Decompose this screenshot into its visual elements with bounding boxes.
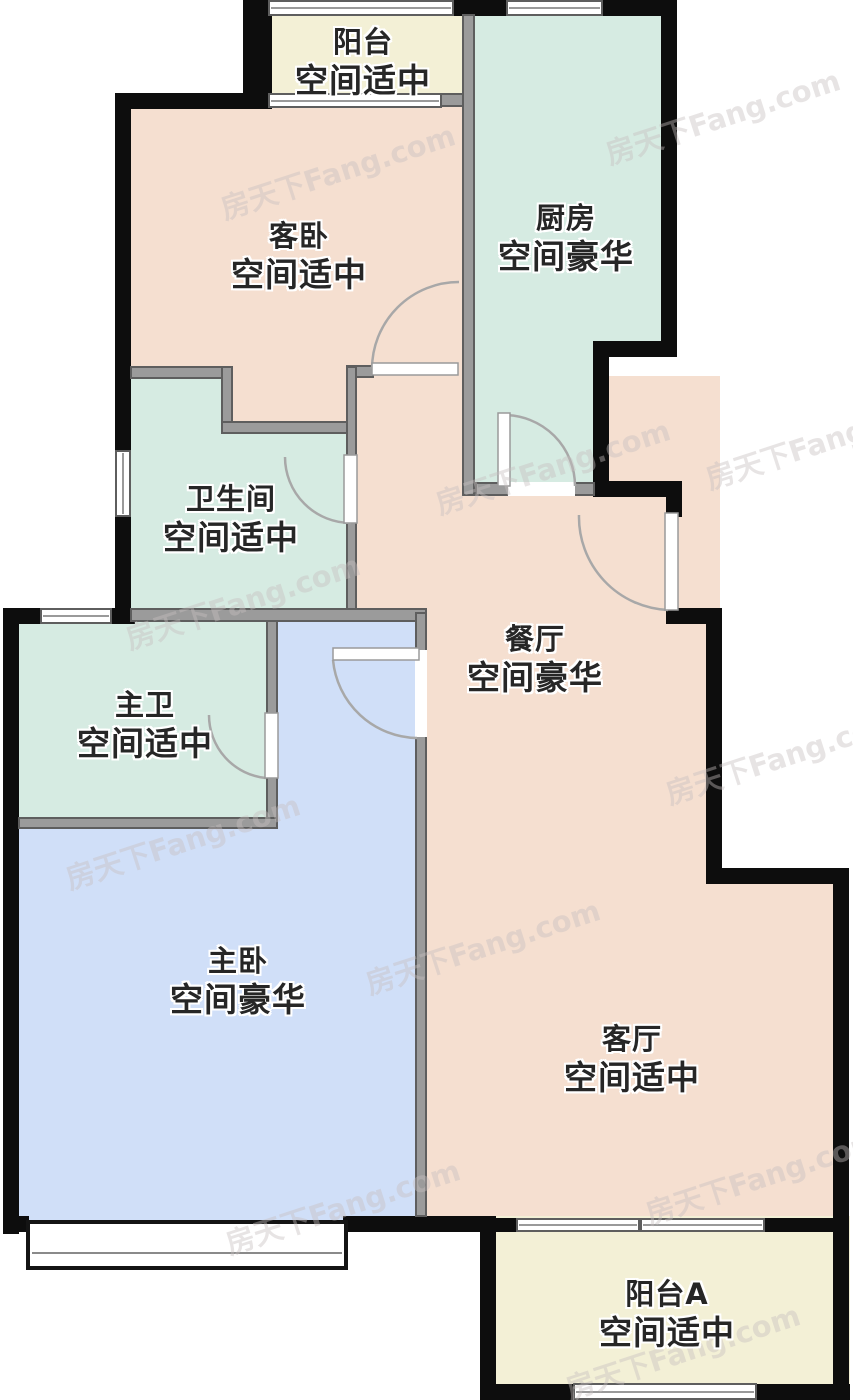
room-label-balcony: 阳台空间适中 [233,23,493,103]
room-name-balcony: 阳台 [333,24,393,60]
room-label-master-bedroom: 主卧空间豪华 [108,942,368,1022]
room-space-rating-bathroom: 空间适中 [163,517,299,559]
room-space-rating-living-room: 空间适中 [564,1057,700,1099]
room-label-master-bathroom: 主卫空间适中 [15,686,275,766]
room-space-rating-dining-room: 空间豪华 [467,657,603,699]
guest-bedroom-door-leaf [372,363,458,375]
room-space-rating-master-bedroom: 空间豪华 [170,979,306,1021]
room-label-guest-bedroom: 客卧空间适中 [169,217,429,297]
room-space-rating-balcony-a: 空间适中 [599,1312,735,1354]
room-space-rating-guest-bedroom: 空间适中 [231,254,367,296]
room-label-living-room: 客厅空间适中 [502,1020,762,1100]
room-label-dining-room: 餐厅空间豪华 [405,620,665,700]
floor-plan: 房天下Fang.com房天下Fang.com房天下Fang.com房天下Fang… [0,0,853,1400]
room-name-living-room: 客厅 [602,1021,662,1057]
room-name-bathroom: 卫生间 [186,481,276,517]
room-space-rating-master-bathroom: 空间适中 [77,723,213,765]
room-label-balcony-a: 阳台A空间适中 [537,1275,797,1355]
room-name-guest-bedroom: 客卧 [269,218,329,254]
entrance-door-arc [579,515,668,610]
entrance-door-leaf [665,513,678,610]
room-space-rating-kitchen: 空间豪华 [498,236,634,278]
room-label-kitchen: 厨房空间豪华 [436,199,696,279]
room-name-balcony-a: 阳台A [625,1276,708,1312]
room-space-rating-balcony: 空间适中 [295,60,431,102]
room-name-master-bedroom: 主卧 [208,943,268,979]
room-name-dining-room: 餐厅 [505,621,565,657]
room-name-master-bathroom: 主卫 [115,687,175,723]
room-label-bathroom: 卫生间空间适中 [101,480,361,560]
room-name-kitchen: 厨房 [536,200,596,236]
